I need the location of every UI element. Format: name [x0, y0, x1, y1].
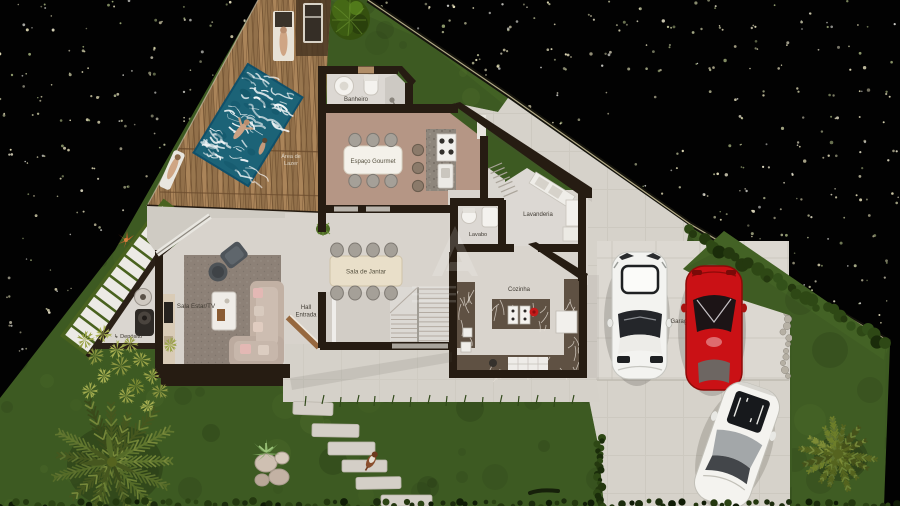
svg-text:Entrada: Entrada — [295, 313, 317, 319]
svg-text:Hall: Hall — [301, 305, 311, 311]
svg-text:Sala de Jantar: Sala de Jantar — [346, 269, 386, 276]
svg-text:Cozinha: Cozinha — [508, 287, 531, 293]
svg-text:Lavabo: Lavabo — [469, 232, 487, 238]
svg-text:Área de: Área de — [281, 153, 301, 160]
svg-text:Banheiro: Banheiro — [344, 97, 369, 103]
svg-text:Lavanderia: Lavanderia — [523, 212, 553, 218]
svg-text:Espaço Gourmet: Espaço Gourmet — [350, 159, 395, 165]
svg-text:Lazer: Lazer — [284, 161, 298, 167]
svg-text:Sala Estar/TV: Sala Estar/TV — [177, 303, 216, 310]
